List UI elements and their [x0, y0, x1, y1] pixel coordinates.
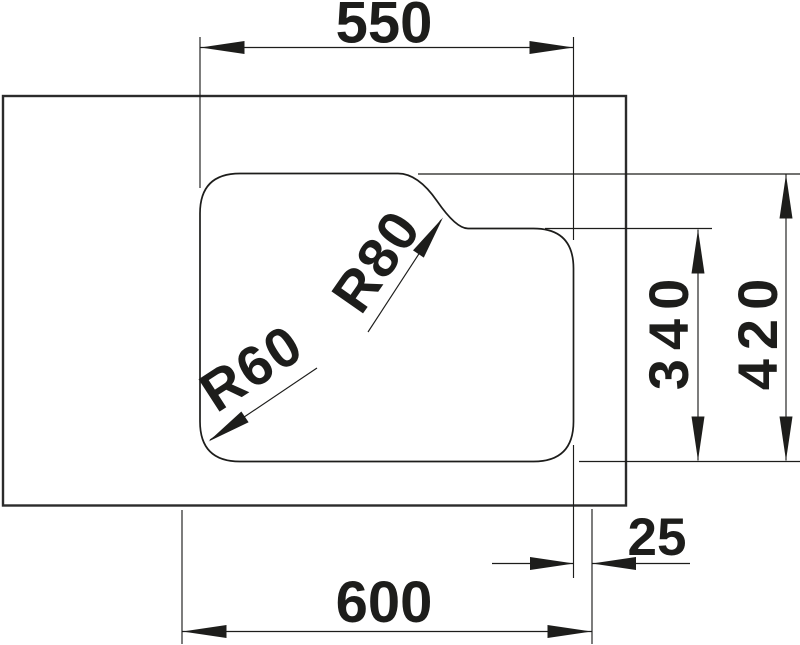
dim-label-bottom-width: 600 — [336, 570, 433, 635]
dimension-drawing-svg: 550 600 25 340 420 R60 R80 — [0, 0, 800, 645]
arrowhead-340-top — [692, 230, 705, 274]
arrowhead-340-bottom — [692, 417, 705, 461]
worktop-outline — [3, 96, 626, 506]
radius-label-notch: R80 — [319, 198, 433, 323]
arrowhead-550-left — [201, 41, 245, 54]
dim-label-inner-height: 340 — [637, 270, 700, 390]
dim-label-right-offset: 25 — [628, 508, 687, 567]
technical-drawing-canvas: 550 600 25 340 420 R60 R80 — [0, 0, 800, 645]
dim-label-overall-height: 420 — [726, 270, 789, 390]
arrowhead-600-left — [183, 625, 227, 638]
arrowhead-25-left — [530, 557, 574, 570]
radius-label-corner: R60 — [189, 312, 315, 424]
arrowhead-600-right — [548, 625, 592, 638]
arrowhead-420-bottom — [780, 417, 793, 461]
arrowhead-550-right — [530, 41, 574, 54]
arrowhead-420-top — [780, 175, 793, 219]
dim-label-top-width: 550 — [336, 0, 433, 56]
